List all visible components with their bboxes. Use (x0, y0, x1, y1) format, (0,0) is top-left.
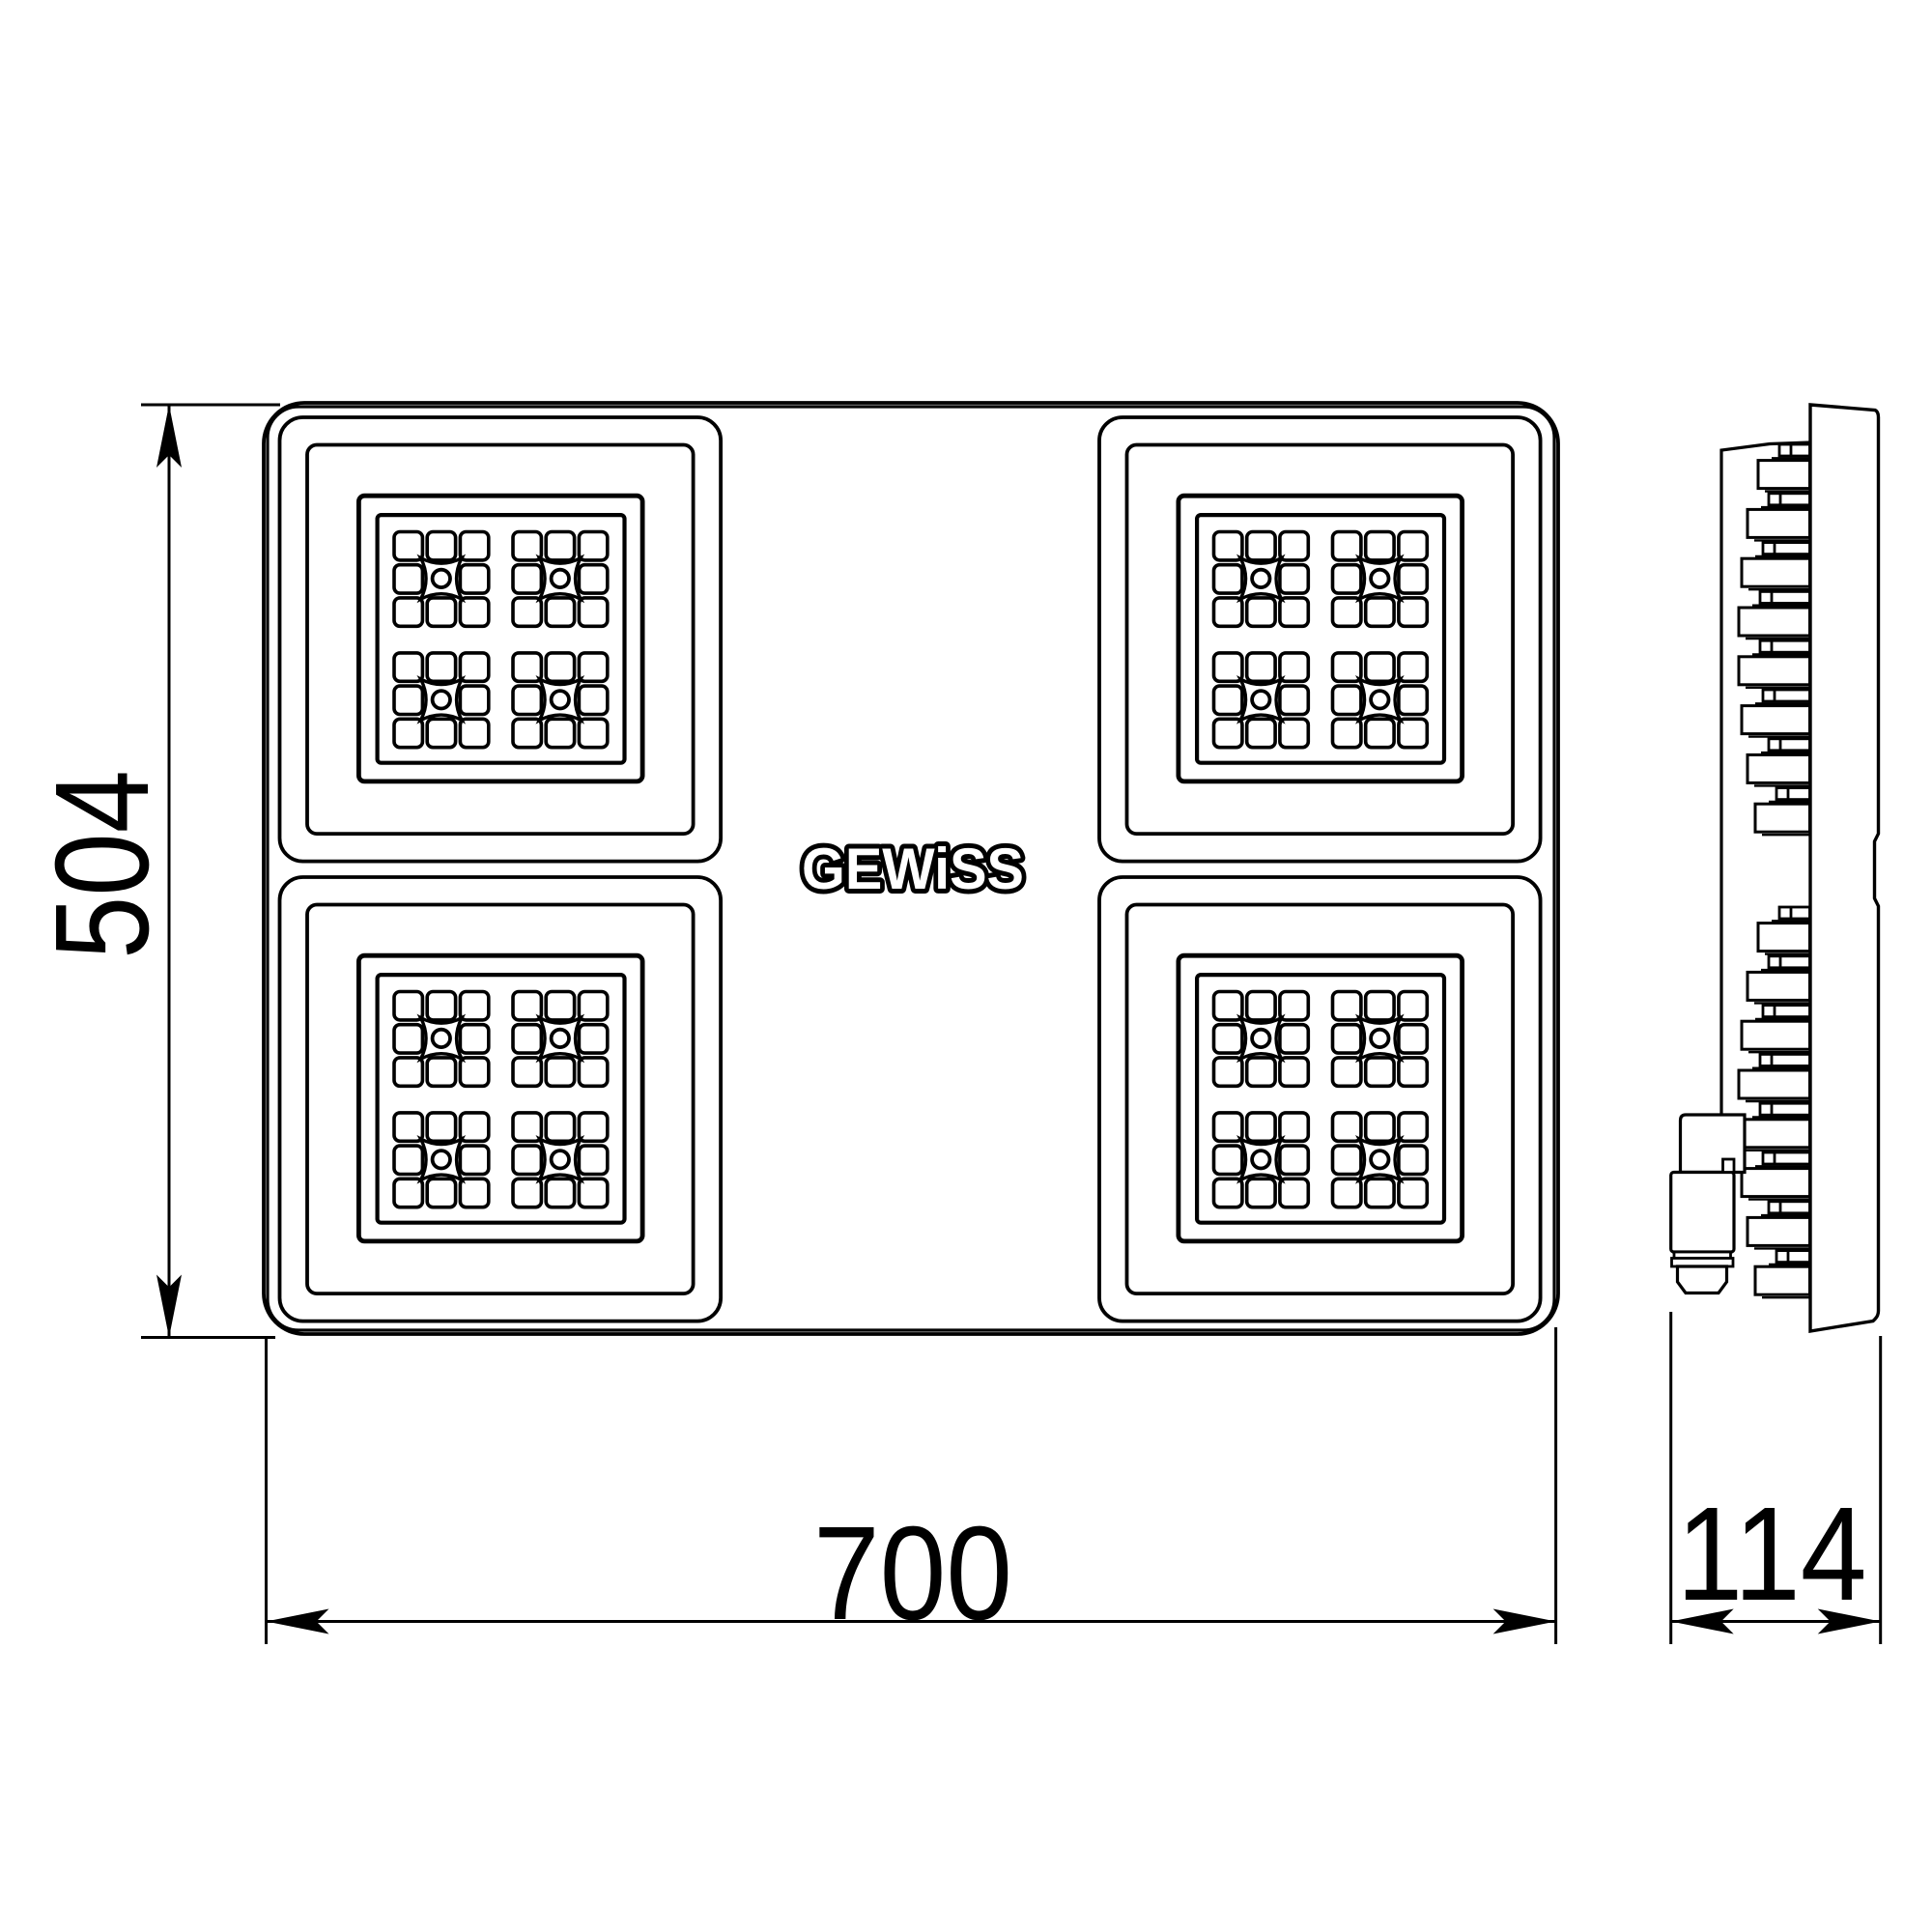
svg-text:700: 700 (813, 1499, 1012, 1648)
svg-text:504: 504 (28, 770, 177, 959)
svg-text:GEWiSS: GEWiSS (802, 837, 1024, 901)
svg-text:114: 114 (1677, 1480, 1867, 1629)
